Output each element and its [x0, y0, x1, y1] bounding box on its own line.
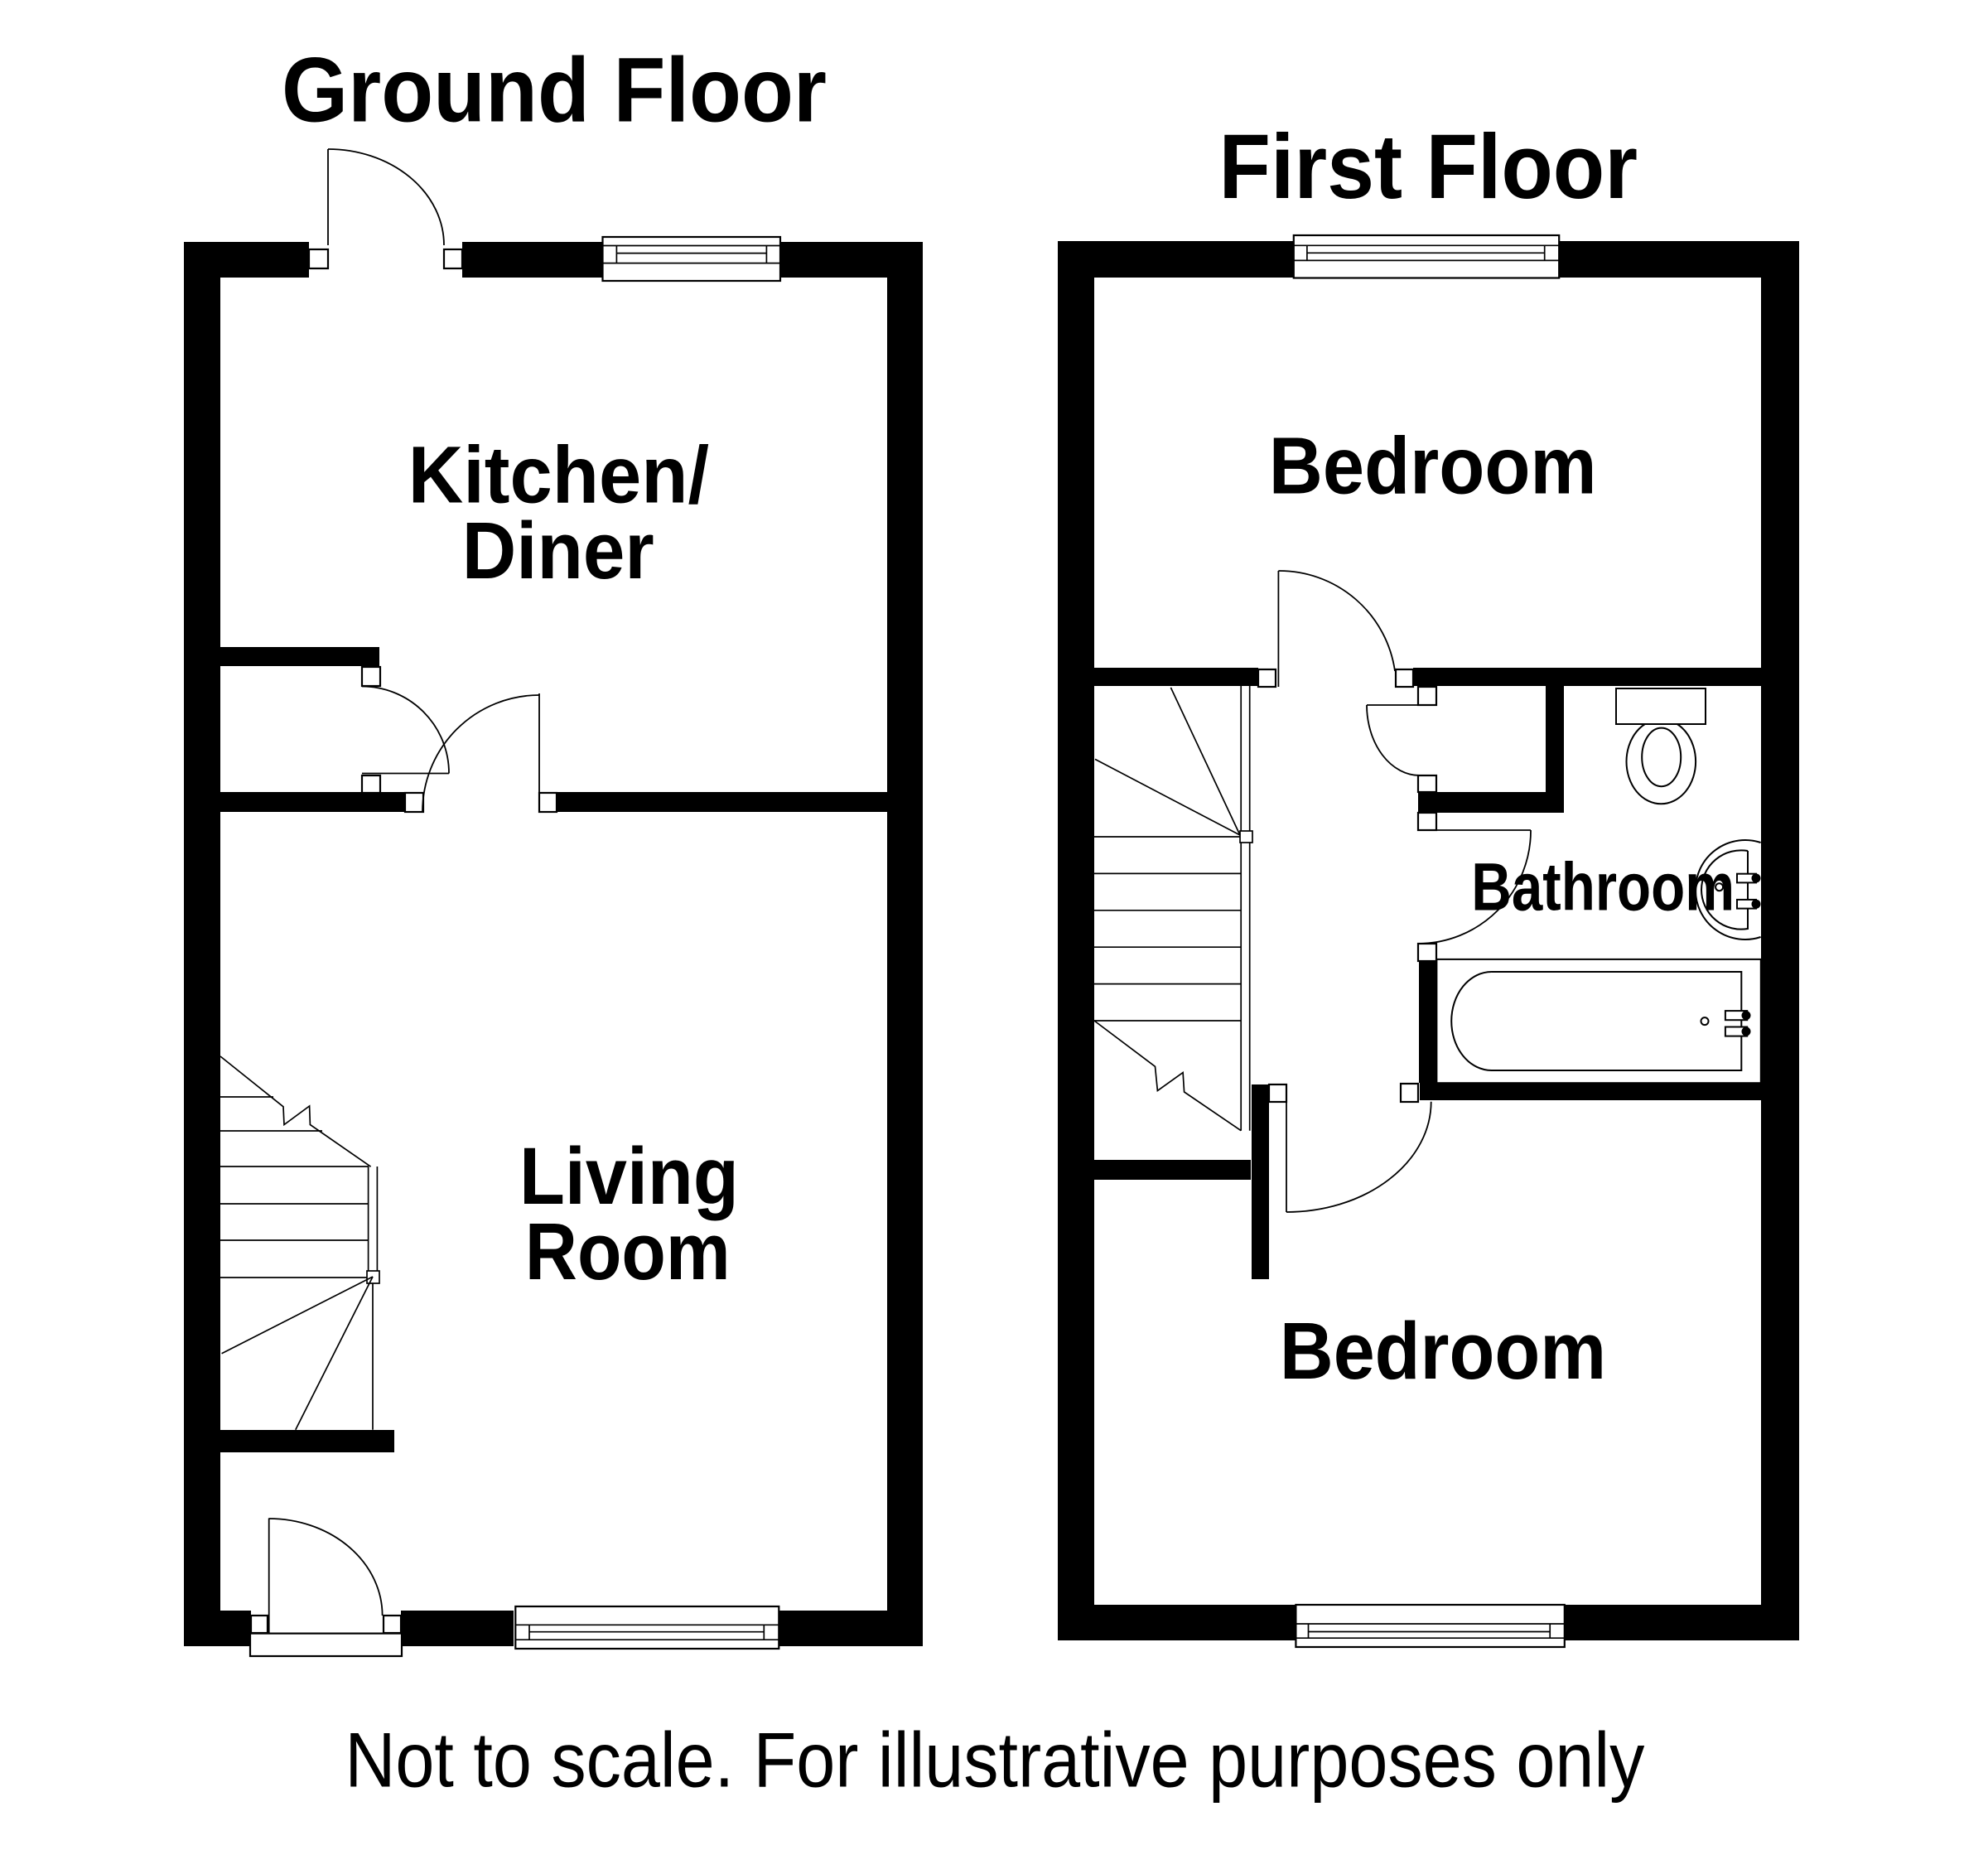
svg-text:Not to scale. For illustrative: Not to scale. For illustrative purposes … — [345, 1717, 1644, 1804]
svg-text:Ground Floor: Ground Floor — [282, 39, 827, 141]
svg-text:First Floor: First Floor — [1219, 116, 1638, 218]
svg-text:Room: Room — [525, 1206, 731, 1297]
svg-text:Diner: Diner — [462, 505, 654, 596]
svg-text:Bathroom: Bathroom — [1471, 850, 1735, 925]
svg-text:Bedroom: Bedroom — [1280, 1306, 1606, 1396]
svg-text:Bedroom: Bedroom — [1269, 421, 1597, 511]
